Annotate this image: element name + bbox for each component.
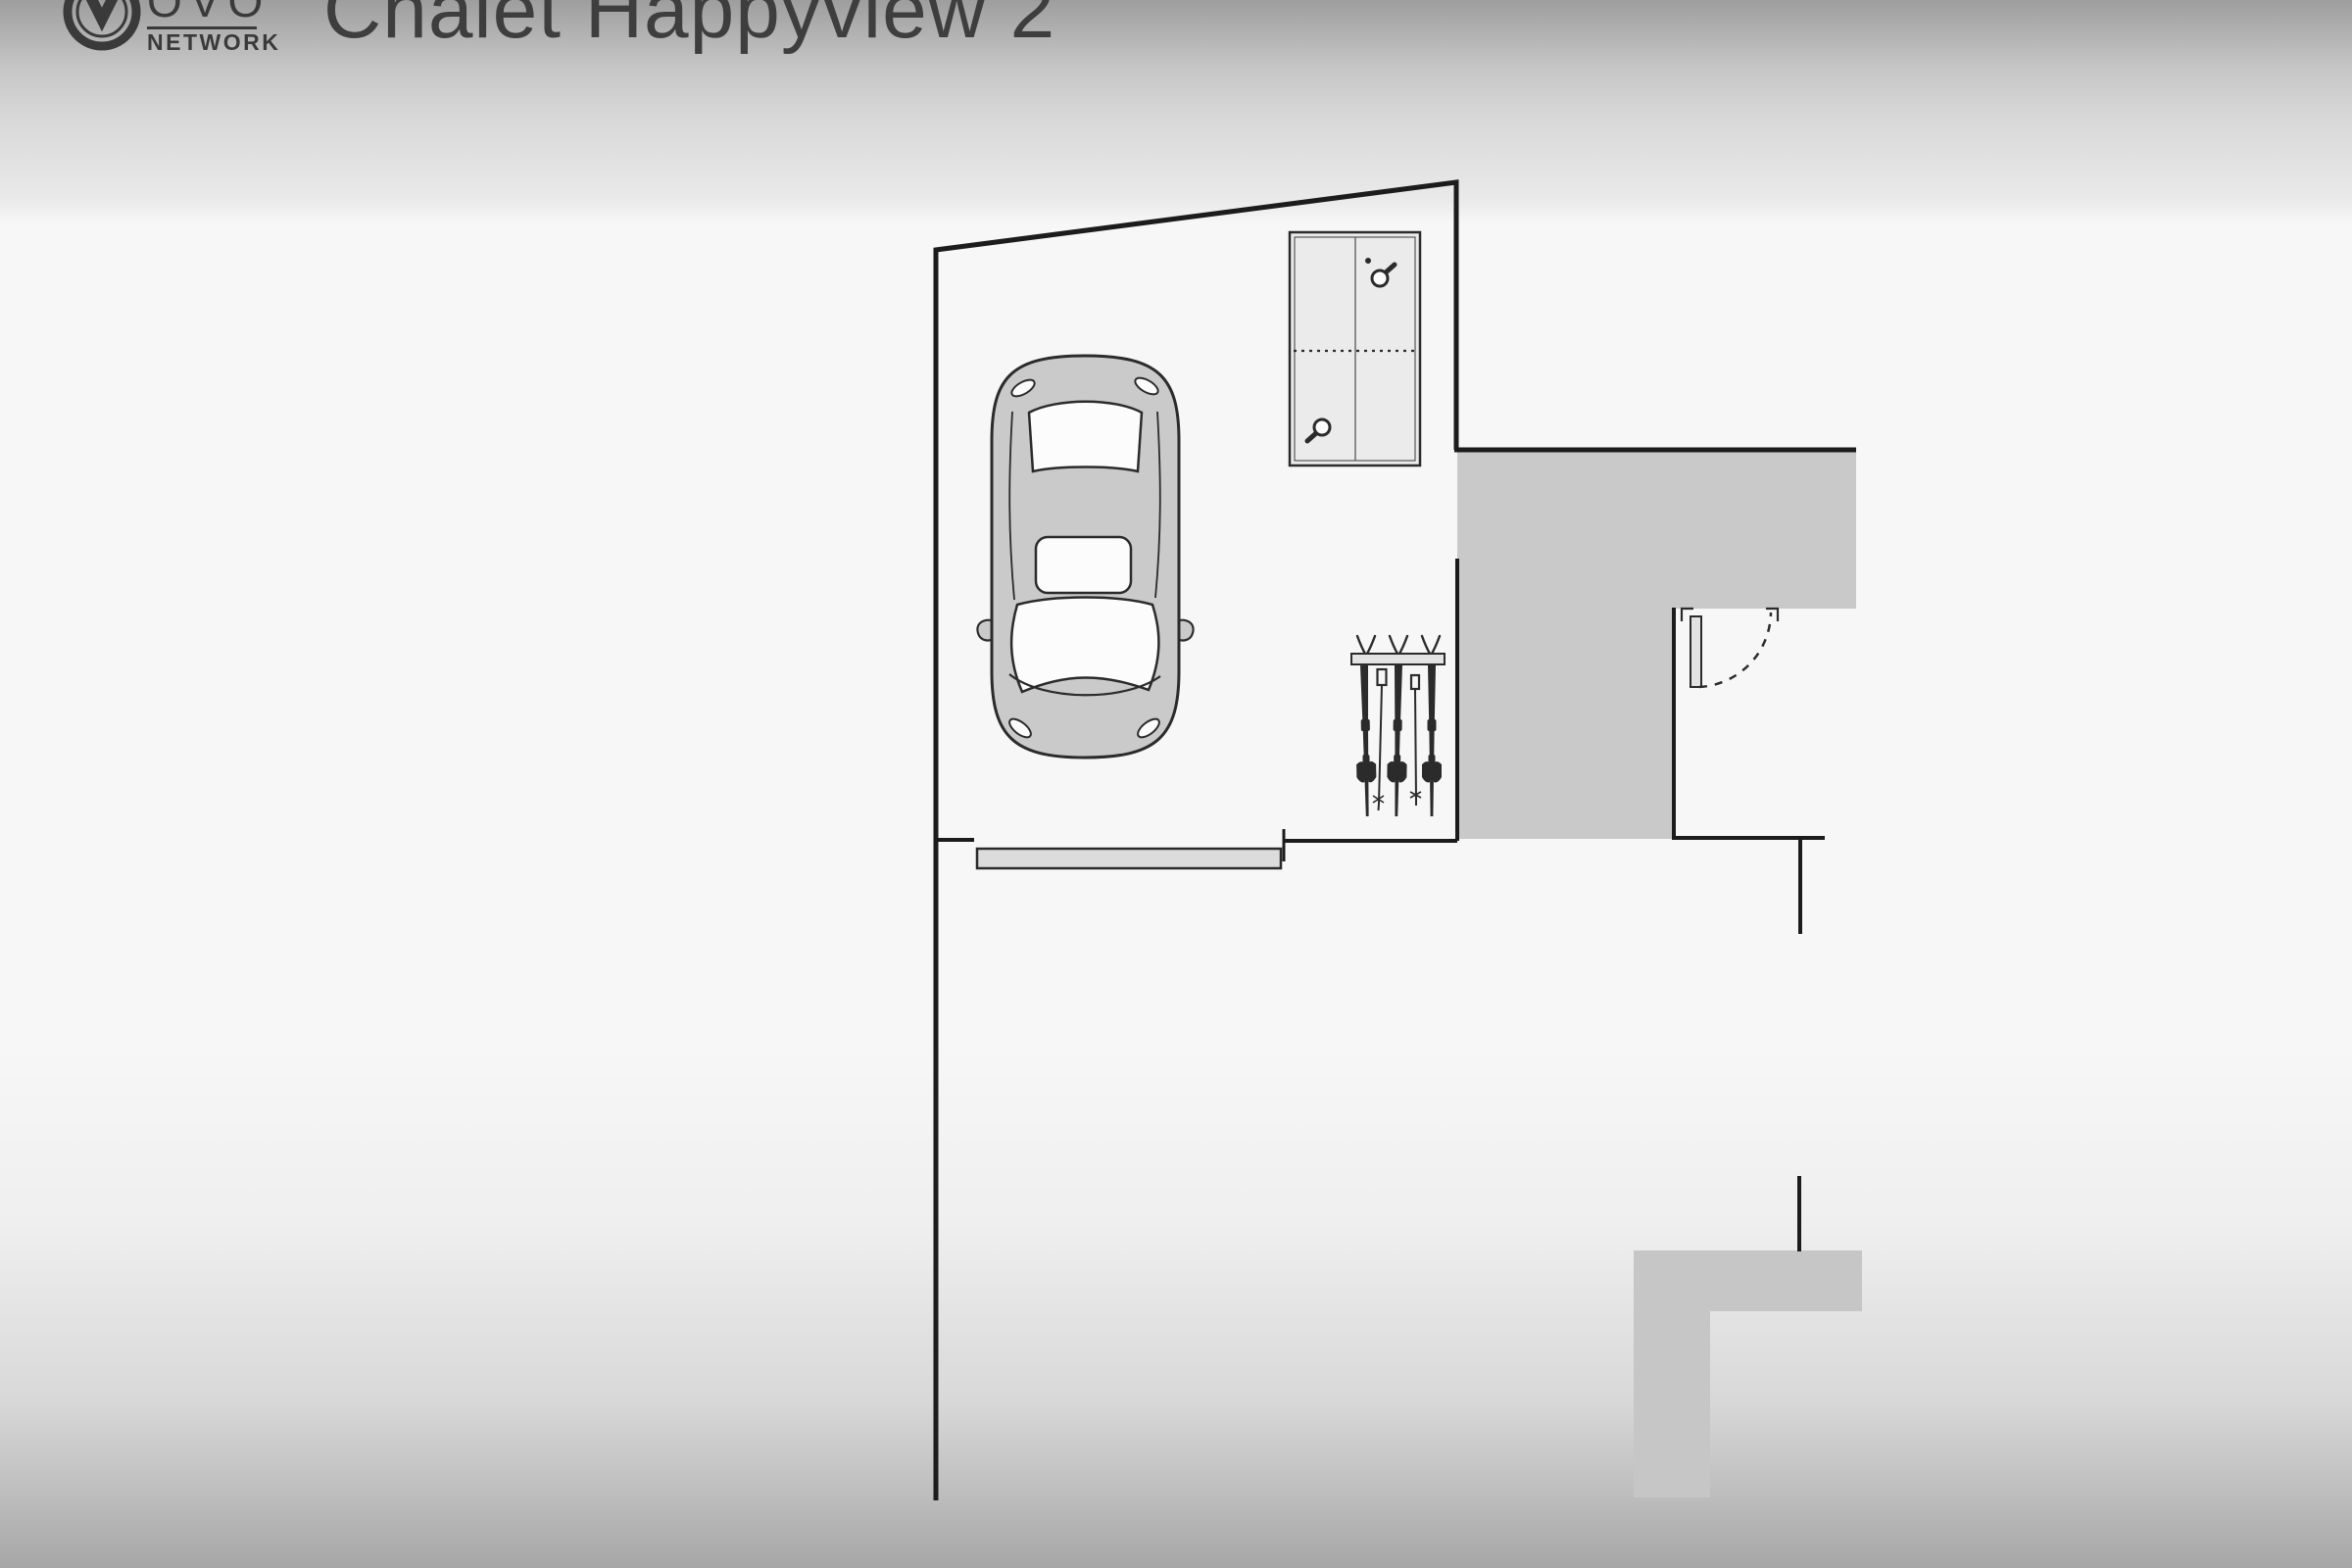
page-title: Chalet Happyview 2 — [323, 0, 1055, 51]
lower-terrace-area — [1634, 1250, 1862, 1497]
ovo-network-emblem — [68, 0, 136, 46]
ski — [1387, 665, 1408, 816]
entry-door — [1682, 609, 1778, 687]
logo-text-ovo: OVO — [147, 0, 270, 24]
ski-pole — [1410, 675, 1421, 806]
paddle-face — [1314, 419, 1330, 435]
pole-grip — [1378, 669, 1387, 685]
floor-plan — [0, 0, 2352, 1568]
car-top-view — [977, 356, 1193, 758]
ping-pong-ball — [1365, 258, 1371, 264]
stair-terrace-area — [1457, 452, 1856, 839]
ping-pong-table — [1290, 232, 1420, 465]
logo-text-network: NETWORK — [147, 31, 280, 54]
ski-pole — [1373, 669, 1387, 810]
rack-bar — [1351, 654, 1445, 664]
car-windshield — [1011, 598, 1158, 693]
pole-shaft — [1379, 685, 1383, 810]
door-swing-arc — [1699, 612, 1771, 687]
ski-tips — [1357, 636, 1440, 655]
paddle-face — [1372, 270, 1388, 286]
ski-rack — [1351, 636, 1445, 816]
garage-door — [977, 849, 1281, 868]
ski — [1354, 665, 1377, 816]
entry-room-walls — [1672, 608, 1825, 1251]
car-rear-window — [1029, 402, 1142, 471]
ski — [1422, 665, 1442, 816]
pole-grip — [1411, 675, 1419, 689]
v-icon — [89, 0, 115, 20]
car-sunroof — [1036, 537, 1131, 593]
pole-shaft — [1415, 689, 1416, 806]
video-frame: Chalet Happyview 2 OVO NETWORK — [0, 0, 2352, 1568]
door-leaf — [1690, 616, 1701, 687]
